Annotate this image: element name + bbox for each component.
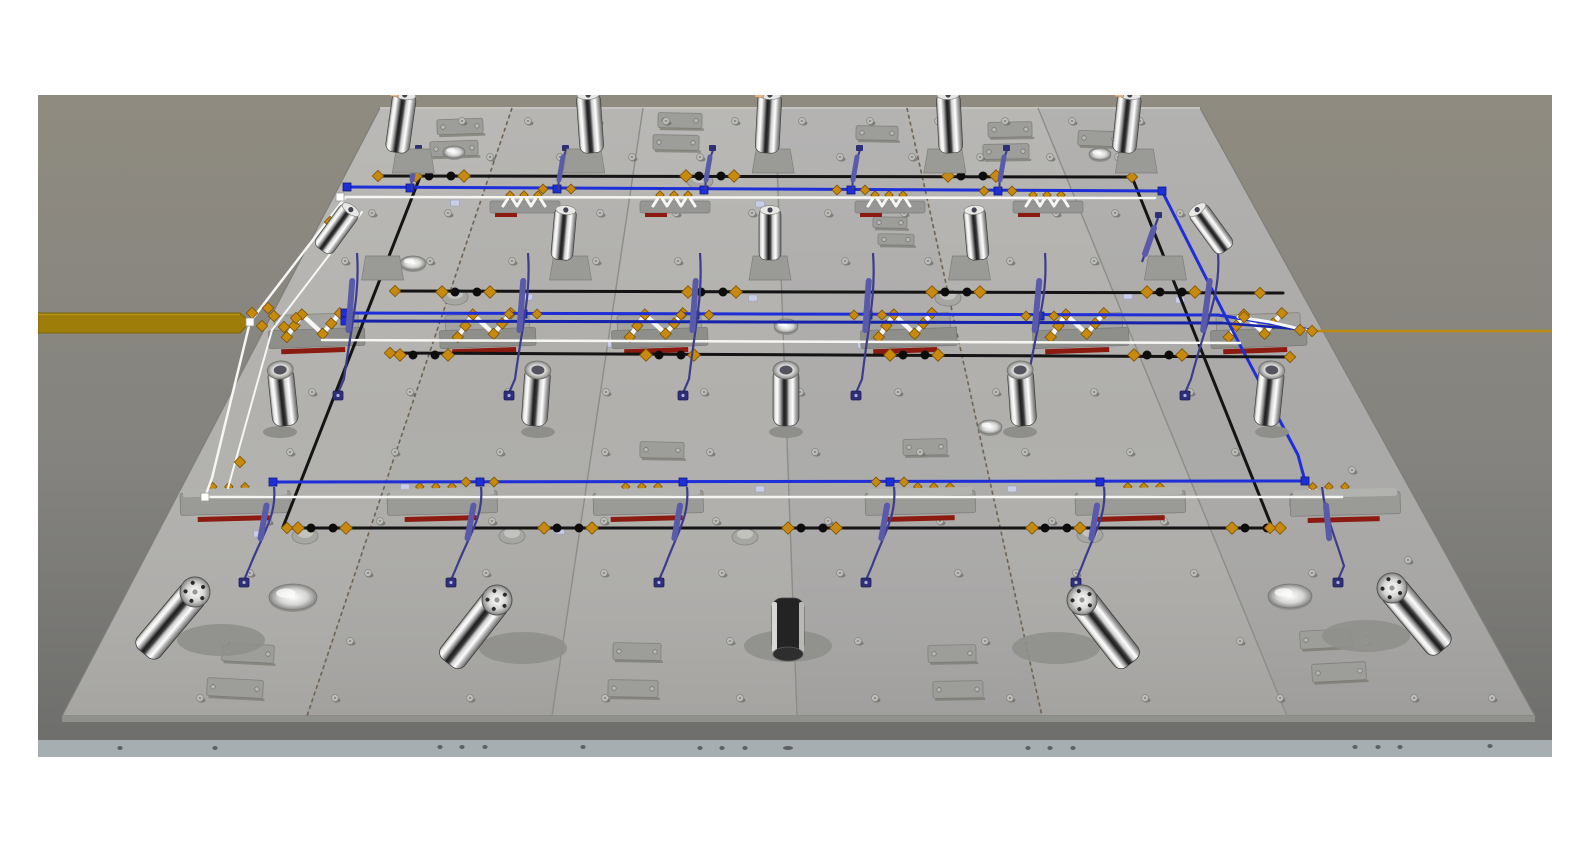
blue-fitting xyxy=(994,187,1002,195)
front-band-hole xyxy=(437,745,442,749)
mounting-pad xyxy=(613,643,663,663)
screw-head xyxy=(721,572,724,575)
screw-head xyxy=(665,120,668,123)
mounting-pad xyxy=(608,680,660,700)
pad-screw xyxy=(653,650,657,654)
boss-highlight xyxy=(1275,588,1293,596)
pneumatic-cylinder xyxy=(576,95,604,154)
screw-head xyxy=(729,640,732,643)
hose-connector-pin xyxy=(1183,394,1186,397)
round-boss xyxy=(978,420,1002,434)
mid-blue-lower xyxy=(345,321,1222,323)
screw-head xyxy=(1049,156,1052,159)
blue-fitting xyxy=(1096,478,1104,486)
tube-connector-dot xyxy=(1143,351,1152,360)
pad-screw xyxy=(1358,669,1363,674)
cylinder-bracket xyxy=(1144,256,1186,280)
tube-connector-dot xyxy=(979,172,988,181)
screw-head xyxy=(995,391,998,394)
pneumatic-cylinder xyxy=(521,360,551,427)
hose-sleeve xyxy=(865,281,868,330)
tube-connector-dot xyxy=(819,524,828,533)
front-band-hole xyxy=(1375,745,1380,749)
screw-head xyxy=(699,156,702,159)
front-band-hole xyxy=(697,746,702,750)
cylinder-shadow xyxy=(1322,620,1410,652)
mounting-pad xyxy=(878,234,916,248)
screw-head xyxy=(334,697,337,700)
pad-screw xyxy=(890,131,894,135)
screw-head xyxy=(1114,212,1117,215)
cylinder-edge-highlight xyxy=(799,602,804,652)
hose-connector-pin xyxy=(242,581,245,584)
tube-connector-dot xyxy=(717,172,726,181)
cylinder-shadow xyxy=(177,624,265,656)
round-boss xyxy=(269,584,317,610)
pad-screw xyxy=(650,687,654,691)
white-fitting xyxy=(201,493,209,501)
pad-screw xyxy=(1316,671,1321,676)
blue-fitting xyxy=(476,478,484,486)
cylinder-body xyxy=(755,95,782,154)
cylinder-base-shadow xyxy=(521,426,555,438)
screw-head xyxy=(1491,697,1494,700)
cylinder-end xyxy=(773,647,803,661)
round-boss xyxy=(443,146,465,158)
manifold-red-stripe xyxy=(495,213,517,217)
tube-connector-dot xyxy=(307,524,316,533)
screw-head xyxy=(919,451,922,454)
tube-connector-dot xyxy=(963,288,972,297)
screw-head xyxy=(839,156,842,159)
cylinder-shadow xyxy=(479,632,567,664)
screw-head xyxy=(839,572,842,575)
page: { "viewport": {"x": 38, "y": 95, "w": 15… xyxy=(0,0,1590,852)
manifold-base xyxy=(855,201,925,213)
pad-screw xyxy=(899,220,903,224)
hose-connector-pin xyxy=(681,394,684,397)
front-band-hole xyxy=(783,746,793,750)
tube-connector-dot xyxy=(329,524,338,533)
hose-connector xyxy=(1155,212,1162,218)
tube-connector-dot xyxy=(677,351,686,360)
screw-head xyxy=(527,120,530,123)
pad-screw xyxy=(691,141,695,145)
screw-head xyxy=(199,697,202,700)
screw-head xyxy=(734,120,737,123)
tube-connector-dot xyxy=(797,524,806,533)
manifold-red-stripe xyxy=(860,213,882,217)
front-band-hole xyxy=(719,746,724,750)
cylinder-bore xyxy=(780,366,793,375)
screw-head xyxy=(249,572,252,575)
boss-highlight xyxy=(276,589,295,598)
pad-screw xyxy=(907,445,911,449)
screw-head xyxy=(311,391,314,394)
cylinder-base-shadow xyxy=(263,426,297,438)
plate-front-edge xyxy=(62,716,1535,722)
round-boss xyxy=(1268,584,1312,608)
pad-screw xyxy=(968,651,972,655)
screw-head xyxy=(461,120,464,123)
screw-head xyxy=(605,391,608,394)
tube-connector-dot xyxy=(409,351,418,360)
tube-connector-dot xyxy=(447,172,456,181)
hose-sleeve xyxy=(348,281,352,330)
screw-head xyxy=(485,572,488,575)
tube-clip xyxy=(1008,486,1017,492)
screw-head xyxy=(469,697,472,700)
tube-connector-dot xyxy=(1241,524,1250,533)
screw-head xyxy=(394,451,397,454)
blue-fitting xyxy=(269,478,277,486)
tube-clip xyxy=(749,295,758,301)
cylinder-bracket xyxy=(550,256,592,280)
screw-head xyxy=(1004,120,1007,123)
blue-fitting xyxy=(343,183,351,191)
screw-head xyxy=(429,260,432,263)
tube-clip xyxy=(756,201,765,207)
hose-connector xyxy=(1003,145,1010,151)
pad-screw xyxy=(255,687,260,692)
pad-screw xyxy=(1082,136,1087,141)
mounting-pad xyxy=(206,678,265,702)
hose-sleeve xyxy=(692,281,695,330)
screw-head xyxy=(715,520,718,523)
tube-connector-dot xyxy=(451,288,460,297)
cylinder-edge-highlight xyxy=(772,602,777,652)
mounting-pad xyxy=(856,126,900,143)
pneumatic-cylinder xyxy=(759,206,781,261)
front-band-hole xyxy=(482,745,487,749)
screw-head xyxy=(1239,640,1242,643)
cylinder-shadow xyxy=(1012,632,1100,664)
hose-connector xyxy=(709,145,716,151)
screw-head xyxy=(349,640,352,643)
mounting-pad xyxy=(928,645,978,665)
pneumatic-cylinder-front xyxy=(772,598,804,661)
pad-screw xyxy=(434,147,439,152)
pneumatic-cylinder xyxy=(963,205,990,261)
screw-head xyxy=(1351,469,1354,472)
pneumatic-cylinder xyxy=(551,205,578,261)
front-band-hole xyxy=(1352,745,1357,749)
front-band-hole xyxy=(1397,745,1402,749)
manifold-red-stripe xyxy=(1018,213,1040,217)
screw-head xyxy=(1413,697,1416,700)
tube-connector-dot xyxy=(655,351,664,360)
screw-head xyxy=(1311,572,1314,575)
blue-fitting xyxy=(847,186,855,194)
screw-head xyxy=(869,120,872,123)
pneumatic-cylinder xyxy=(773,361,799,426)
manifold-base xyxy=(1013,201,1083,213)
pad-screw xyxy=(612,686,616,690)
screw-head xyxy=(1024,451,1027,454)
blue-fitting xyxy=(679,478,687,486)
screw-head xyxy=(751,212,754,215)
screw-head xyxy=(1129,451,1132,454)
screw-head xyxy=(1009,260,1012,263)
pad-screw xyxy=(676,448,680,452)
screw-head xyxy=(1234,451,1237,454)
screw-head xyxy=(631,156,634,159)
hose-connector-pin xyxy=(1074,581,1077,584)
mounting-pad xyxy=(988,122,1034,140)
pad-screw xyxy=(992,128,996,132)
screw-head xyxy=(739,697,742,700)
hose-connector-pin xyxy=(864,581,867,584)
hose-connector-pin xyxy=(336,394,339,397)
screw-head xyxy=(1051,520,1054,523)
pad-screw xyxy=(1024,127,1028,131)
tube-clip xyxy=(756,486,765,492)
mounting-pad xyxy=(903,439,949,458)
hose-sleeve xyxy=(519,281,523,330)
screw-head xyxy=(604,451,607,454)
front-band-hole xyxy=(459,745,464,749)
pad-screw xyxy=(211,685,216,690)
tube-connector-dot xyxy=(431,351,440,360)
screw-head xyxy=(289,451,292,454)
pad-screw xyxy=(882,237,886,241)
fixture-render[interactable] xyxy=(38,95,1552,757)
screw-head xyxy=(979,156,982,159)
screw-head xyxy=(1407,559,1410,562)
tube-clip xyxy=(451,200,460,206)
blue-fitting xyxy=(1158,187,1166,195)
cylinder-base-shadow xyxy=(769,426,803,438)
boss-highlight xyxy=(446,148,455,152)
cylinder-body xyxy=(576,95,604,154)
screw-head xyxy=(897,391,900,394)
pad-screw xyxy=(1021,149,1025,153)
tube-connector-dot xyxy=(899,351,908,360)
tube-connector-dot xyxy=(1165,351,1174,360)
screw-head xyxy=(1093,391,1096,394)
pad-screw xyxy=(860,131,864,135)
tube-connector-dot xyxy=(575,524,584,533)
blue-fitting xyxy=(1301,477,1309,485)
mounting-pad xyxy=(640,442,686,461)
screw-head xyxy=(1093,260,1096,263)
hose-sleeve xyxy=(1326,506,1329,539)
screw-head xyxy=(1279,697,1282,700)
blue-fitting xyxy=(886,478,894,486)
screw-head xyxy=(677,260,680,263)
screw-head xyxy=(603,572,606,575)
screw-head xyxy=(911,156,914,159)
front-band-hole xyxy=(580,745,585,749)
cylinder-body xyxy=(759,208,781,260)
mid-blue-upper xyxy=(345,313,1218,315)
tube-connector-dot xyxy=(1156,288,1165,297)
screw-head xyxy=(984,640,987,643)
tube-connector-dot xyxy=(921,351,930,360)
cylinder-body xyxy=(551,207,577,261)
back-white-line xyxy=(340,197,1155,198)
screw-head xyxy=(801,120,804,123)
pad-screw xyxy=(906,237,910,241)
tube-connector-dot xyxy=(1178,288,1187,297)
boss-highlight xyxy=(982,422,992,427)
white-fitting xyxy=(336,193,344,201)
white-fitting xyxy=(246,318,254,326)
screw-head xyxy=(1071,120,1074,123)
screw-head xyxy=(874,697,877,700)
cad-3d-viewport[interactable] xyxy=(38,95,1552,757)
hose-connector-pin xyxy=(507,394,510,397)
blue-fitting xyxy=(406,184,414,192)
screw-head xyxy=(1144,697,1147,700)
pad-screw xyxy=(975,687,979,691)
pad-screw xyxy=(470,146,475,151)
screw-head xyxy=(599,212,602,215)
cylinder-bracket xyxy=(362,256,404,280)
pneumatic-cylinder xyxy=(1007,360,1037,427)
orange-supply-band xyxy=(38,313,250,333)
screw-head xyxy=(957,572,960,575)
pad-screw xyxy=(939,444,943,448)
mounting-pad xyxy=(873,217,909,231)
front-band-hole xyxy=(1487,744,1492,748)
front-band-hole xyxy=(117,746,122,750)
pad-screw xyxy=(1304,638,1309,643)
round-boss xyxy=(1089,148,1111,160)
screw-head xyxy=(344,260,347,263)
base-front-band xyxy=(38,740,1552,757)
screw-head xyxy=(603,520,606,523)
tube-connector-dot xyxy=(1063,524,1072,533)
tube-connector-dot xyxy=(553,524,562,533)
pad-screw xyxy=(441,125,446,130)
cylinder-bracket xyxy=(948,256,990,280)
front-band-hole xyxy=(212,746,217,750)
hose-connector-pin xyxy=(854,394,857,397)
pad-screw xyxy=(694,119,698,123)
mounting-pad xyxy=(1312,661,1369,684)
pad-screw xyxy=(266,652,271,657)
hose-connector-pin xyxy=(657,581,660,584)
pad-screw xyxy=(644,447,648,451)
screw-head xyxy=(379,520,382,523)
screw-head xyxy=(857,640,860,643)
cylinder-body xyxy=(963,207,989,261)
back-black-line xyxy=(378,176,1132,177)
cylinder-base-shadow xyxy=(1255,426,1289,438)
screw-head xyxy=(703,391,706,394)
manifold-base xyxy=(490,201,560,213)
screw-head xyxy=(814,451,817,454)
tube-connector-dot xyxy=(941,288,950,297)
screw-head xyxy=(827,520,830,523)
hose-connector xyxy=(856,145,863,151)
tube-connector-dot xyxy=(719,288,728,297)
screw-head xyxy=(371,212,374,215)
tube-connector-dot xyxy=(695,172,704,181)
screw-head xyxy=(604,697,607,700)
front-band-hole xyxy=(1025,746,1030,750)
boss-highlight xyxy=(1092,150,1101,154)
screw-head xyxy=(491,520,494,523)
pad-screw xyxy=(475,124,480,129)
screw-head xyxy=(1075,572,1078,575)
screw-head xyxy=(511,260,514,263)
cylinder-tan-fitting xyxy=(755,95,764,98)
pad-screw xyxy=(617,649,621,653)
cylinder-base-shadow xyxy=(1003,426,1037,438)
screw-head xyxy=(927,260,930,263)
pad-screw xyxy=(932,652,936,656)
tube-connector-dot xyxy=(473,288,482,297)
cable-pod-top xyxy=(737,529,753,539)
front-band-hole xyxy=(742,746,747,750)
front-band-hole xyxy=(1070,746,1075,750)
cylinder-port xyxy=(767,207,772,212)
mounting-pad xyxy=(933,681,985,701)
screw-head xyxy=(1009,697,1012,700)
screw-head xyxy=(844,260,847,263)
screw-head xyxy=(409,391,412,394)
round-boss xyxy=(400,256,426,270)
screw-head xyxy=(489,156,492,159)
screw-head xyxy=(827,212,830,215)
pad-screw xyxy=(877,220,881,224)
screw-head xyxy=(367,572,370,575)
pad-screw xyxy=(657,140,661,144)
front-blue-line xyxy=(273,481,1305,482)
boss-highlight xyxy=(404,258,414,263)
hose-connector-pin xyxy=(1336,581,1339,584)
manifold-base xyxy=(640,201,710,213)
pad-screw xyxy=(937,688,941,692)
tube-connector-dot xyxy=(1041,524,1050,533)
screw-head xyxy=(447,212,450,215)
screw-head xyxy=(595,260,598,263)
pneumatic-cylinder xyxy=(936,95,963,154)
cylinder-body xyxy=(936,95,963,154)
screw-head xyxy=(1193,572,1196,575)
screw-head xyxy=(1179,212,1182,215)
blue-fitting xyxy=(700,186,708,194)
screw-head xyxy=(499,451,502,454)
manifold-red-stripe xyxy=(645,213,667,217)
pad-screw xyxy=(987,150,991,154)
front-band-hole xyxy=(1047,746,1052,750)
hose-connector-pin xyxy=(449,581,452,584)
mounting-pad xyxy=(653,135,701,153)
screw-head xyxy=(709,451,712,454)
